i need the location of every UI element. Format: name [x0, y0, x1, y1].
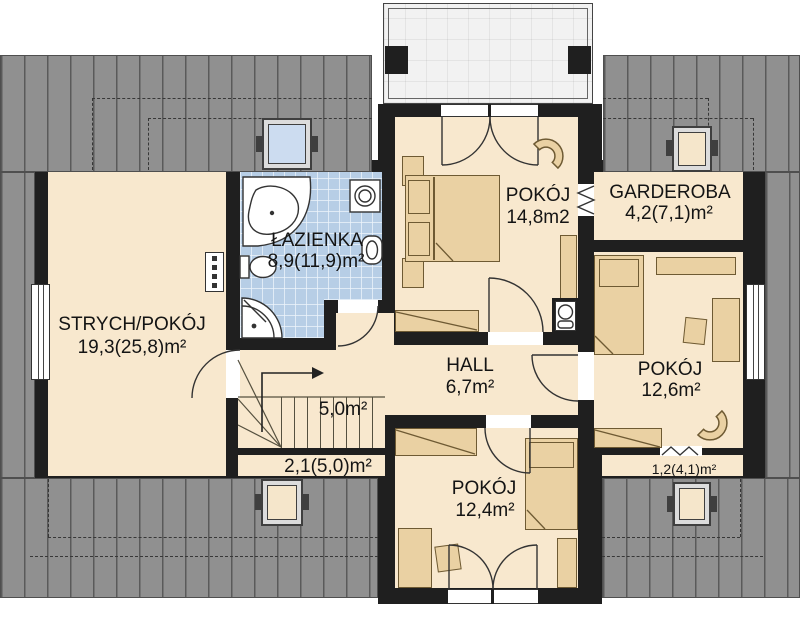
- roof-dash: [92, 98, 372, 99]
- skylight-bottom-right: [673, 482, 711, 526]
- skylight-pane: [267, 485, 297, 520]
- skylight-bracket: [302, 494, 309, 510]
- door-opening-pokoj-dolny: [486, 415, 531, 428]
- door-opening-pokoj-prawy: [578, 352, 594, 400]
- label-pokoj-dolny-name: POKÓJ: [452, 478, 516, 499]
- label-hall-area: 6,7m²: [446, 377, 495, 398]
- roof-dash: [602, 556, 763, 557]
- desk: [712, 298, 740, 362]
- label-strych-name: STRYCH/POKÓJ: [58, 314, 205, 335]
- shelf: [560, 235, 577, 305]
- label-lazienka-area: 8,9(11,9)m²: [268, 251, 365, 272]
- label-pokoj-dolny-area: 12,4m²: [455, 500, 514, 521]
- low-opening-garderoba: [578, 184, 594, 216]
- skylight-bathroom: [262, 118, 312, 170]
- roof-dash: [48, 537, 378, 538]
- roof-dash: [148, 118, 372, 119]
- label-lazienka-name: ŁAZIENKA: [271, 230, 363, 251]
- skylight-bracket: [256, 136, 263, 152]
- skylight-pane: [678, 132, 706, 166]
- wardrobe-sloped: [395, 310, 479, 332]
- balcony-post-left: [385, 46, 408, 74]
- skylight-pane: [679, 488, 705, 520]
- radiator-knob: [212, 265, 217, 270]
- skylight-pane: [268, 124, 306, 164]
- label-pokoj-gorny-name: POKÓJ: [506, 185, 570, 206]
- roof-top-left: [0, 55, 372, 172]
- roof-right-side: [765, 172, 800, 478]
- wardrobe-sloped: [395, 428, 477, 456]
- pillow: [529, 442, 574, 468]
- roof-dash: [740, 479, 741, 537]
- radiator-knob: [212, 283, 217, 288]
- bed-divider: [433, 177, 435, 260]
- skylight-bottom-left: [261, 479, 303, 526]
- radiator-knob: [212, 256, 217, 261]
- roof-dash: [753, 118, 754, 170]
- nightstand: [402, 258, 424, 288]
- knee-wall-storage: [594, 428, 662, 448]
- roof-dash: [602, 537, 740, 538]
- roof-left-side: [0, 172, 35, 478]
- roof-dash: [92, 98, 93, 170]
- desk: [398, 528, 432, 588]
- skylight-bracket: [666, 140, 673, 156]
- pillow: [408, 222, 430, 256]
- label-hall-name: HALL: [446, 355, 494, 376]
- label-garderoba-name: GARDEROBA: [609, 182, 730, 203]
- roof-bottom-left: [0, 478, 378, 598]
- skylight-bracket: [311, 136, 318, 152]
- skylight-bracket: [255, 494, 262, 510]
- skylight-bracket: [667, 496, 674, 512]
- balcony: [383, 3, 593, 104]
- roof-dash: [148, 118, 149, 170]
- label-strip21-area: 2,1(5,0)m²: [284, 456, 372, 477]
- label-pokoj-gorny-area: 14,8m2: [506, 207, 569, 228]
- label-pokoj-prawy-area: 12,6m²: [641, 380, 700, 401]
- roof-dash: [603, 98, 708, 99]
- balcony-post-right: [568, 46, 591, 74]
- shelf: [557, 538, 577, 588]
- skylight-bracket: [711, 140, 718, 156]
- label-strych-area: 19,3(25,8)m²: [78, 337, 187, 358]
- radiator-knob: [212, 274, 217, 279]
- pillow: [599, 259, 639, 287]
- skylight-garderoba: [672, 126, 712, 172]
- label-garderoba-area: 4,2(7,1)m²: [625, 203, 713, 224]
- low-opening-strip: [660, 446, 702, 456]
- balcony-door-bottom-mullion: [491, 589, 494, 604]
- label-stairs-area: 5,0m²: [319, 399, 368, 420]
- roof-dash: [30, 556, 378, 557]
- balcony-railing: [388, 8, 588, 99]
- door-opening-strych: [226, 350, 240, 398]
- pillow: [408, 180, 430, 214]
- shelf: [656, 257, 736, 275]
- window-pokoj-prawy: [746, 284, 765, 380]
- door-opening-pokoj-gorny: [488, 332, 543, 345]
- room-lazienka-shower-bay: [240, 296, 324, 338]
- label-strip12-area: 1,2(4,1)m²: [652, 462, 717, 476]
- window-strych: [31, 284, 50, 380]
- label-pokoj-prawy-name: POKÓJ: [638, 359, 702, 380]
- balcony-door-top-mullion: [488, 104, 491, 117]
- sink-unit: [555, 301, 576, 331]
- chair: [683, 317, 708, 345]
- skylight-bracket: [710, 496, 717, 512]
- roof-dash: [603, 118, 753, 119]
- roof-dash: [48, 479, 49, 537]
- floor-plan: STRYCH/POKÓJ 19,3(25,8)m² ŁAZIENKA 8,9(1…: [0, 0, 800, 622]
- door-opening-bathroom: [338, 300, 378, 313]
- chair: [434, 543, 461, 572]
